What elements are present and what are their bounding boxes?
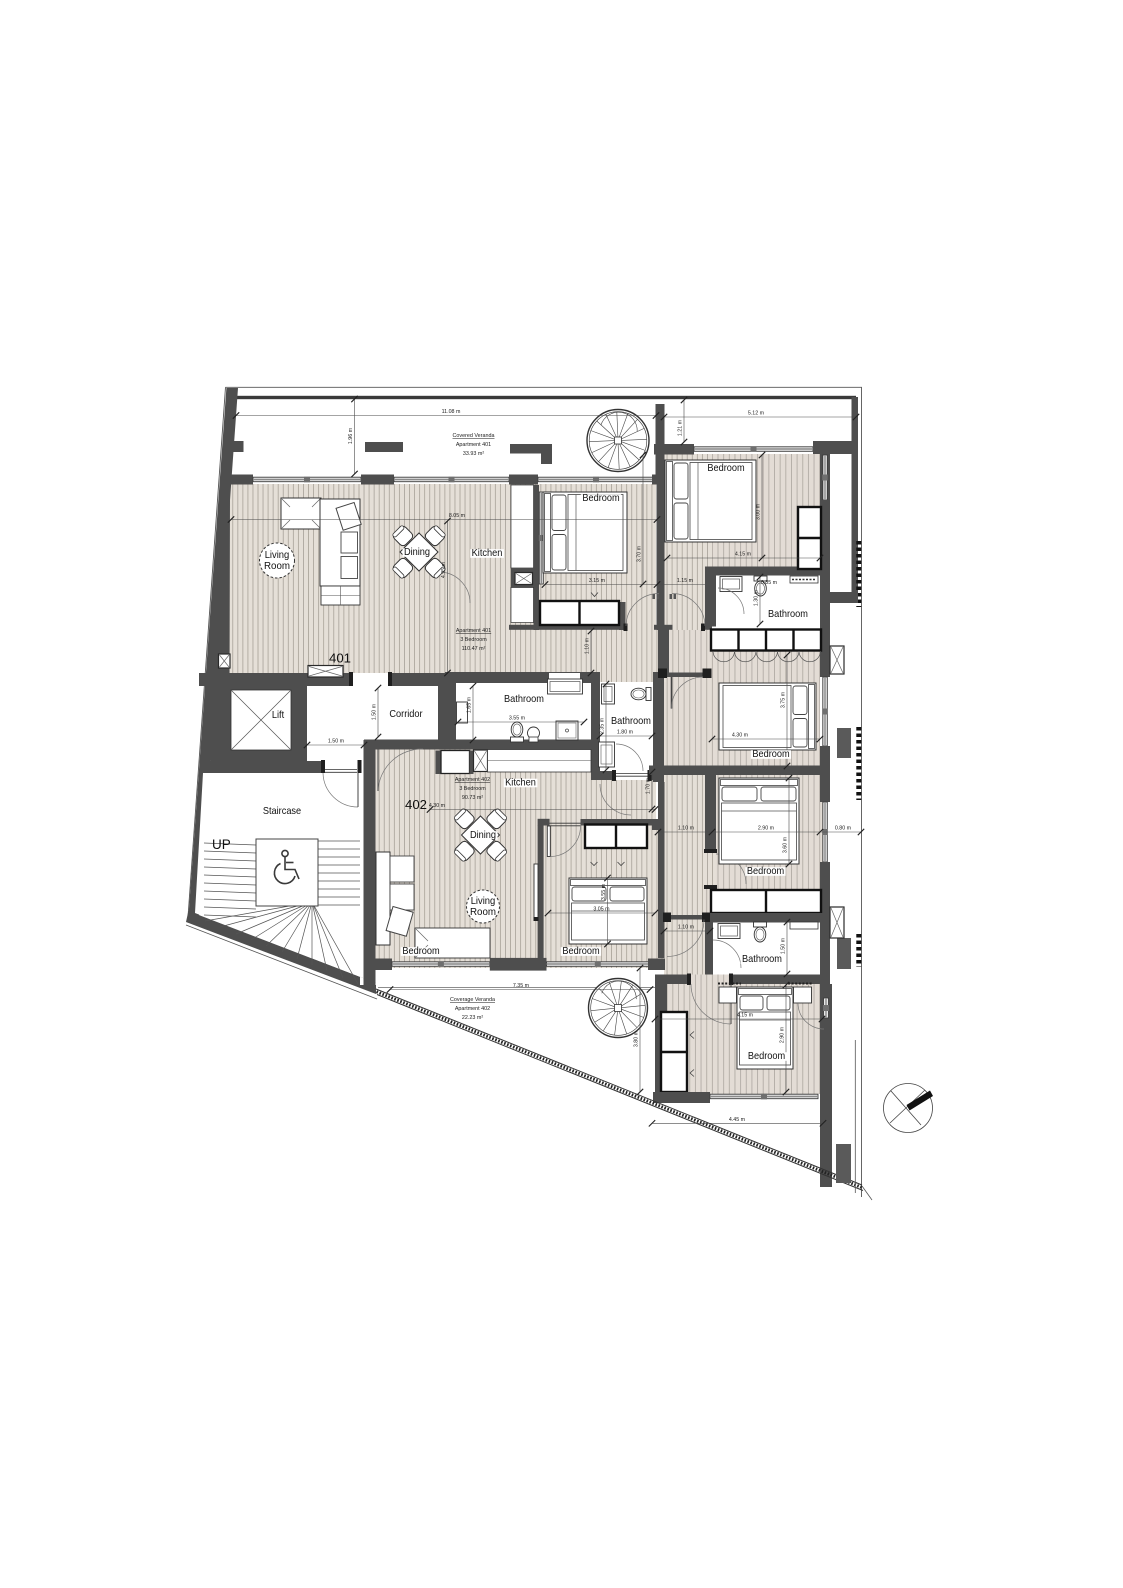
svg-text:3.00 m: 3.00 m [756,503,762,520]
svg-text:Dining: Dining [404,547,430,558]
svg-text:4.45 m: 4.45 m [729,1117,746,1123]
svg-text:Living: Living [265,550,290,561]
svg-text:22.23 m²: 22.23 m² [462,1015,483,1021]
svg-text:3.60 m: 3.60 m [783,836,789,853]
svg-text:3.80 m: 3.80 m [634,1030,640,1047]
svg-text:2.35 m: 2.35 m [600,717,606,734]
svg-text:Lift: Lift [272,710,284,721]
svg-text:Kitchen: Kitchen [505,778,536,789]
svg-text:7.35 m: 7.35 m [513,983,530,989]
svg-text:1.15 m: 1.15 m [677,578,694,584]
svg-text:Staircase: Staircase [263,806,301,817]
svg-text:8.05 m: 8.05 m [449,513,466,519]
svg-text:UP: UP [212,837,231,852]
svg-text:402: 402 [405,797,427,812]
svg-text:3.70 m: 3.70 m [637,545,643,562]
svg-text:4.15 m: 4.15 m [735,552,752,558]
svg-text:Kitchen: Kitchen [472,548,503,559]
svg-text:1.21 m: 1.21 m [678,419,684,436]
svg-text:3.75 m: 3.75 m [781,691,787,708]
svg-text:Apartment 401: Apartment 401 [456,442,491,448]
svg-text:3.55 m: 3.55 m [509,716,526,722]
svg-text:1.80 m: 1.80 m [617,730,634,736]
svg-text:1.70 m: 1.70 m [646,777,652,794]
svg-text:1.50 m: 1.50 m [328,739,345,745]
svg-text:2.90 m: 2.90 m [758,826,775,832]
svg-text:Bathroom: Bathroom [504,694,544,705]
svg-text:1.50 m: 1.50 m [372,703,378,720]
svg-text:401: 401 [329,651,351,666]
svg-text:0.80 m: 0.80 m [835,826,852,832]
svg-text:1.30 m: 1.30 m [754,589,760,606]
svg-text:Bedroom: Bedroom [402,946,439,957]
svg-text:1.10 m: 1.10 m [678,826,695,832]
svg-text:Bathroom: Bathroom [742,954,782,965]
svg-text:Bedroom: Bedroom [562,946,599,957]
svg-text:Bedroom: Bedroom [582,493,619,504]
svg-text:3 Bedroom: 3 Bedroom [460,637,487,643]
svg-text:Bathroom: Bathroom [611,716,651,727]
svg-text:4.30 m: 4.30 m [429,803,446,809]
svg-text:Bedroom: Bedroom [747,866,784,877]
svg-text:4.95 m: 4.95 m [441,561,447,578]
svg-text:3.15 m: 3.15 m [589,578,606,584]
svg-text:2.90 m: 2.90 m [780,1026,786,1043]
svg-text:1.10 m: 1.10 m [585,637,591,654]
svg-text:1.50 m: 1.50 m [781,937,787,954]
svg-text:Apartment 402: Apartment 402 [455,777,490,783]
svg-text:Corridor: Corridor [389,709,423,720]
svg-text:90.73 m²: 90.73 m² [462,795,483,801]
svg-text:Room: Room [470,907,496,918]
svg-text:1.96 m: 1.96 m [348,427,354,444]
svg-text:Room: Room [264,561,290,572]
svg-text:Covered Veranda: Covered Veranda [453,433,495,439]
svg-text:11.08 m: 11.08 m [442,409,461,415]
svg-text:Coverage Veranda: Coverage Veranda [450,997,495,1003]
svg-text:5.12 m: 5.12 m [748,411,765,417]
svg-text:0.85 m: 0.85 m [761,580,778,586]
svg-text:1.10 m: 1.10 m [678,925,695,931]
svg-text:Bathroom: Bathroom [768,609,808,620]
svg-text:Living: Living [471,896,496,907]
svg-text:Bedroom: Bedroom [748,1051,785,1062]
svg-text:1.65 m: 1.65 m [467,696,473,713]
svg-text:110.47 m²: 110.47 m² [462,646,486,652]
svg-text:4.30 m: 4.30 m [732,733,749,739]
svg-text:Bedroom: Bedroom [707,463,744,474]
svg-text:Apartment 402: Apartment 402 [455,1006,490,1012]
svg-text:3.55 m: 3.55 m [601,883,607,900]
svg-text:Dining: Dining [470,830,496,841]
svg-text:33.93 m²: 33.93 m² [463,451,484,457]
svg-text:4.15 m: 4.15 m [737,1013,754,1019]
svg-text:Bedroom: Bedroom [752,749,789,760]
svg-text:3 Bedroom: 3 Bedroom [459,786,486,792]
svg-text:Apartment 401: Apartment 401 [456,628,491,634]
